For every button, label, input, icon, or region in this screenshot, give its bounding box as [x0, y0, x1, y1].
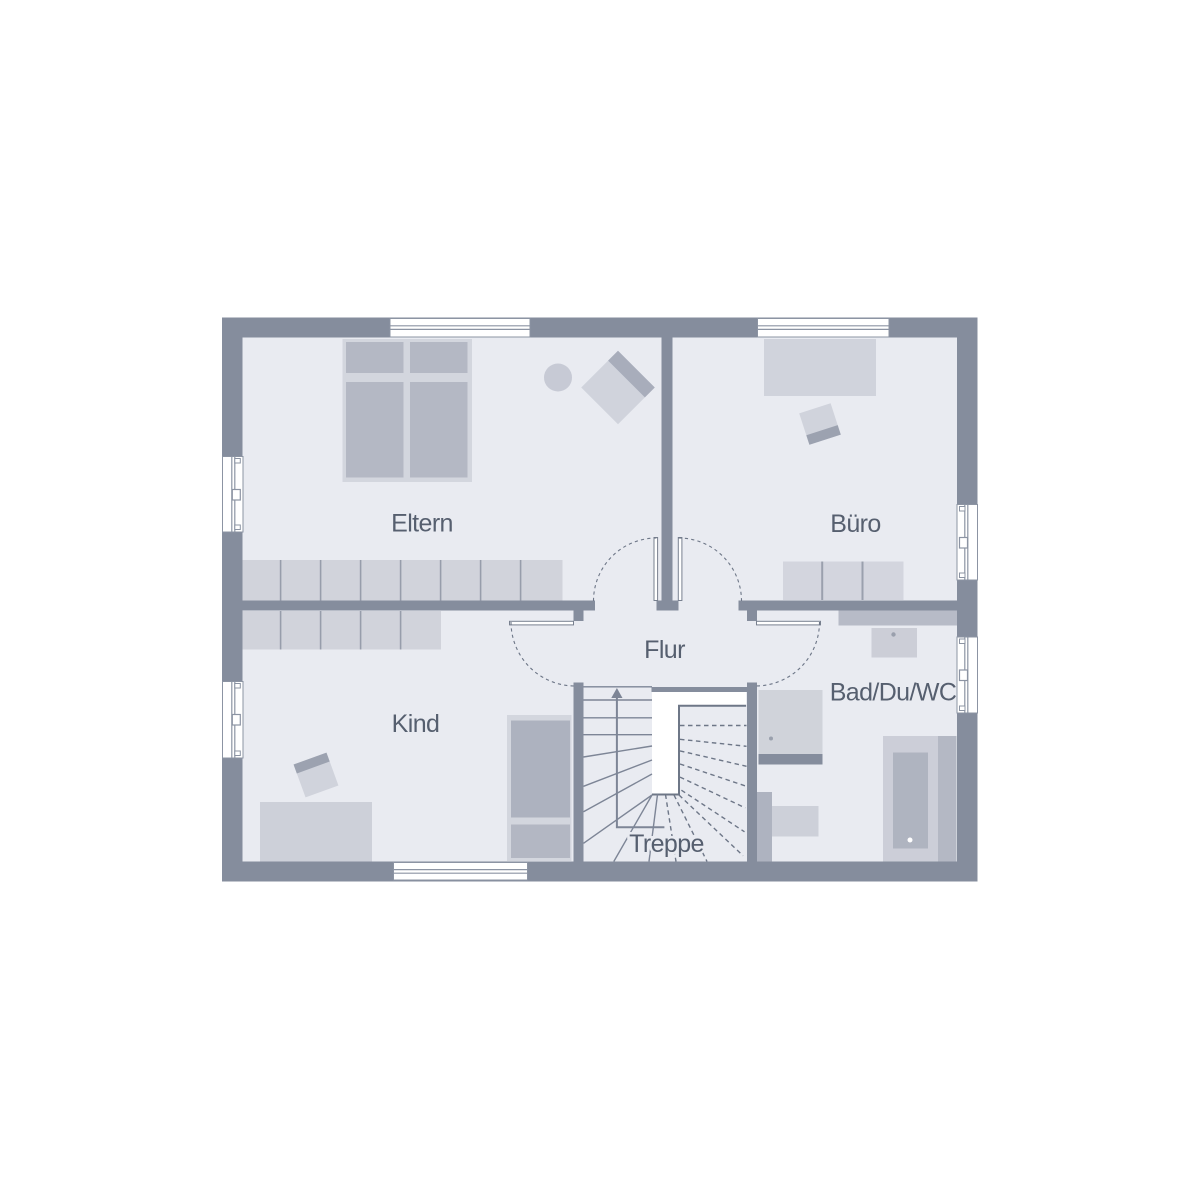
svg-text:Flur: Flur: [644, 636, 685, 664]
svg-text:Treppe: Treppe: [629, 830, 704, 858]
svg-text:Bad/Du/WC: Bad/Du/WC: [830, 679, 957, 707]
svg-text:Büro: Büro: [830, 510, 880, 538]
svg-text:Kind: Kind: [392, 710, 440, 738]
svg-text:Eltern: Eltern: [391, 510, 453, 538]
